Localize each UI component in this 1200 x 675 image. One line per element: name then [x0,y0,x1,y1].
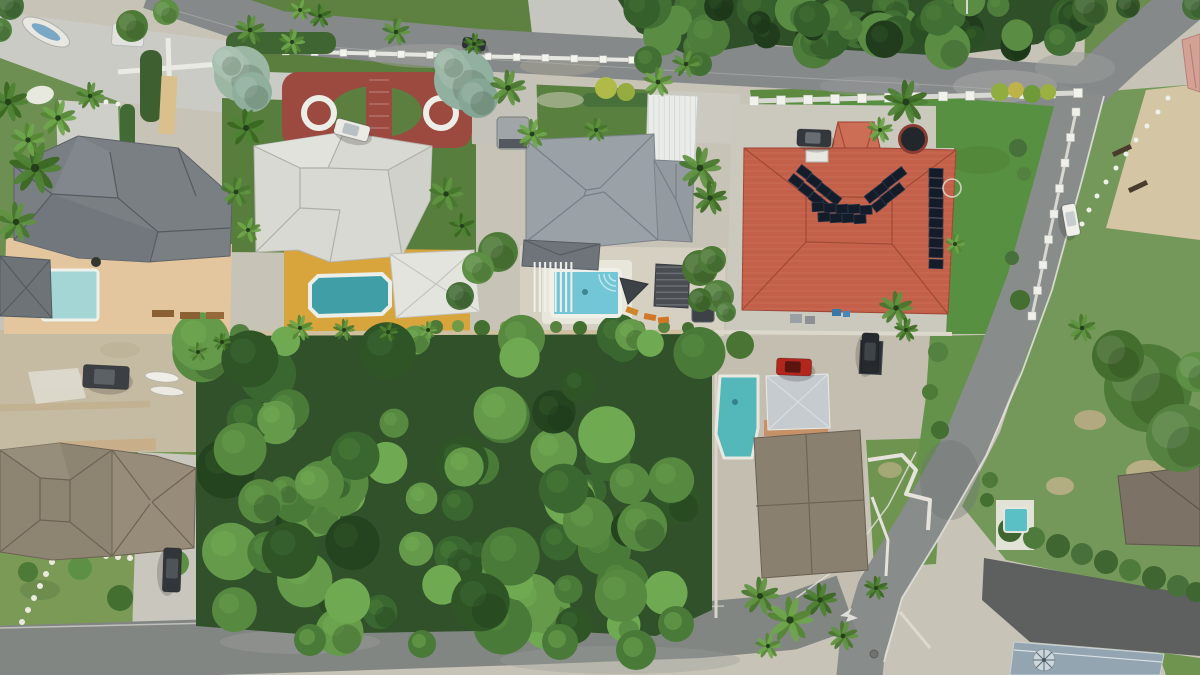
tree-shade [5,1,22,18]
solar-panel [929,208,943,217]
white-post-statue [1104,180,1109,185]
forest-canopy-light [641,333,653,345]
forest-canopy-light [566,373,581,388]
stepping-stone [127,555,133,561]
wall-forest-white [714,332,952,334]
forest-canopy-shadow [810,38,827,55]
bush-6 [573,321,587,335]
wall-post [1034,287,1042,295]
solar-panel [929,228,943,237]
wall-post [1072,108,1080,116]
palm-crown [394,30,398,34]
forest-canopy-light [270,530,295,555]
white-post-statue [104,100,109,105]
forest-overhang-light [299,629,315,645]
white-post-statue [1156,110,1161,115]
tree-shade [1083,2,1105,24]
wall-post [1039,261,1047,269]
forest-canopy-light [230,338,256,364]
tree-1 [232,72,272,112]
roof-ne-corner-brown-roof [1118,466,1200,546]
bush-15 [982,472,998,488]
bush-37 [1119,559,1141,581]
roof-center-wing [654,160,694,242]
white-post-statue [1166,96,1171,101]
solar-panel [824,203,836,213]
ground-blotch-2 [1046,477,1074,495]
tarp [28,368,86,404]
palm-crown [530,132,535,137]
tree-22 [153,0,179,25]
forest-overhang-light [1049,29,1065,45]
truck-sandlot-cabin [94,369,115,385]
palm-crown [684,62,688,66]
forest-canopy-light [338,438,360,460]
white-post-statue [1134,138,1139,143]
palm-crown [88,94,92,98]
forest-canopy-light [616,469,634,487]
solar-panel [929,178,943,187]
pool-mansion [310,274,390,316]
bush-12 [1017,167,1031,181]
wall-post [831,95,840,104]
solar-panel [929,188,943,197]
forest-canopy-light [447,494,461,508]
forest-canopy-shadow [375,607,396,628]
palm-crown [220,340,224,344]
forest-overhang-light [623,637,643,657]
solar-panel [848,204,860,214]
roof-topleft-pavilion [0,256,52,318]
ground-blotch-9 [100,342,140,358]
bench-patio-3 [206,312,224,319]
white-post-statue [1087,208,1092,213]
bush-30 [595,77,617,99]
forest-canopy-light [558,579,571,592]
forest-canopy-light [693,20,712,39]
pool-center-house [552,270,620,316]
forest-canopy-shadow [715,2,733,20]
roof-bottomleft-a [0,443,112,560]
palm-crown [505,85,511,91]
pool-equip-1 [832,309,841,316]
palm-crown [953,242,957,246]
solar-panel [929,168,943,177]
palm-crown [246,228,250,232]
roof-bottomleft-b [112,450,196,556]
roof-center-wing-roof [654,160,694,242]
forest-canopy-light [458,558,471,571]
tree-7 [462,252,494,284]
tree-shade [161,8,177,24]
palm-crown [707,195,712,200]
wall-post [571,55,578,62]
grill [91,257,101,267]
forest-canopy-light [799,6,815,22]
pool-se-small [1004,508,1028,532]
wall-post [542,54,549,61]
bush-16 [980,493,994,507]
garden-path-tan [158,76,177,135]
forest-canopy-light [219,593,239,613]
wall-post [1028,312,1036,320]
stepping-stone [37,583,43,589]
forest-overhang-light [548,630,566,648]
forest-canopy-light [871,25,888,42]
wall-post [939,92,948,101]
car-dark-bottomleft-cabin [166,558,179,578]
palm-crown [31,164,39,172]
tree-19 [688,288,712,312]
forest-canopy-light [482,394,506,418]
wall-post [777,96,786,105]
tree-2 [212,46,244,78]
solar-panel [836,204,848,214]
forest-canopy-light [537,435,558,456]
bush-23 [931,421,949,439]
roof-center-house [526,134,658,246]
bush-13 [1005,251,1019,265]
suv-dark-cabin [864,342,876,360]
forest-canopy-light [650,577,670,597]
palm-crown [13,219,19,225]
bush-36 [1094,550,1118,574]
forest-canopy-light [926,5,942,21]
forest-canopy-shadow [547,405,573,431]
bush-35 [1071,543,1093,565]
forest-canopy-light [505,343,523,361]
tree-13 [1092,330,1144,382]
roof-ne-corner-brown [1118,466,1200,546]
wall-post [427,52,434,59]
tree-shade [490,245,514,269]
bush-21 [928,342,948,362]
tree-shade [244,85,268,109]
wall-post [398,51,405,58]
forest-canopy-shadow [472,593,507,628]
palm-crown [594,128,598,132]
palm-crown [904,328,908,332]
palm-crown [196,350,200,354]
bush-2 [474,320,490,336]
tree-20 [716,302,736,322]
solar-panel [929,238,943,247]
palm-crown [460,224,464,228]
forest-canopy-light [546,528,563,545]
tree-shade [1123,2,1137,16]
forest-canopy-light [331,584,351,604]
white-post-statue [1145,124,1150,129]
spiral-staircase [1033,649,1055,671]
forest-canopy-shadow [756,19,770,33]
palm-crown [298,8,302,12]
palm-crown [817,597,822,602]
palm-crown [25,137,30,142]
forest-canopy-shadow [254,495,281,522]
tree-8 [446,282,474,310]
ground-blotch-7 [878,462,902,478]
bush-17 [991,83,1009,101]
forest-canopy-light [655,463,676,484]
forest-canopy-light [404,536,419,551]
bush-14 [1010,290,1030,310]
ac-unit-2 [805,316,815,324]
car-dark-orangehouse-cabin [805,132,821,144]
tree-shade [455,291,472,308]
forest-canopy-light [490,535,516,561]
bush-24 [68,556,92,580]
palm-crown [443,191,448,196]
wall-post [966,91,975,100]
bush-22 [922,384,938,400]
bush-20 [1040,84,1056,100]
tree-shade [1108,347,1139,378]
lounger-2 [658,316,670,323]
bush-39 [1167,575,1189,597]
white-post-statue [1124,152,1129,157]
wall-post [1045,236,1053,244]
tree-shade [126,21,145,40]
road-patch-3 [1035,52,1115,84]
solar-panel [929,218,943,227]
forest-canopy-light [428,570,446,588]
solar-panel [929,259,943,268]
white-post-statue [1080,222,1085,227]
ground-blotch-3 [1074,410,1106,430]
ground-blotch-10 [536,92,584,108]
solar-panel [830,213,842,223]
stepping-stone [25,607,31,613]
tree-shade [707,255,724,272]
forest-canopy-light [681,334,704,357]
bush-26 [107,585,133,611]
tree-5 [434,48,466,80]
solar-panel [818,212,830,222]
bush-43 [726,331,754,359]
forest-canopy-light [450,453,468,471]
palm-crown [766,644,770,648]
forest-canopy-light [222,430,246,454]
solar-panel [929,248,943,257]
forest-canopy-light [384,413,397,426]
palm-crown [472,42,476,46]
wall-post [369,50,376,57]
car-red-cabin [785,361,801,373]
wall-post [513,54,520,61]
roof-center-house-roof [526,134,658,246]
palm-crown [318,14,322,18]
palm-crown [697,165,704,172]
palm-crown [874,586,878,590]
bench-patio-2 [180,312,200,319]
white-post-statue [1114,166,1119,171]
manhole [870,650,878,658]
solar-panel [860,205,872,215]
screenshot-root [0,0,1200,675]
white-post-statue [116,102,121,107]
wall-post [1061,159,1069,167]
palm-crown [298,326,302,330]
roof-bottomright-house [754,430,868,578]
solar-panel [929,198,943,207]
forest-canopy-light [211,531,237,557]
bush-31 [617,83,635,101]
palm-crown [757,593,763,599]
bush-5 [550,321,562,333]
forest-canopy-light [587,414,613,440]
pool-mansion-water [310,274,390,316]
bush-19 [1023,85,1041,103]
palm-crown [243,125,249,131]
forest-canopy-light [546,470,568,492]
forest-canopy-light [1006,24,1020,38]
bush-38 [1142,566,1166,590]
solar-panel [854,214,866,224]
wall-post [600,56,607,63]
tree-21 [116,10,148,42]
wall-post [1050,210,1058,218]
forest-vacant-lot [172,312,726,670]
stepping-stone [31,595,37,601]
wall-post [340,49,347,56]
palm-crown [248,28,253,33]
bush-11 [1009,139,1027,157]
palm-crown [386,330,390,334]
palm-crown [902,98,909,105]
pool-detail [582,289,588,295]
bush-1 [452,320,464,332]
wall-post [858,94,867,103]
hedge-3 [582,93,652,107]
roof-mansion [254,132,432,262]
white-post-statue [1095,194,1100,199]
bush-25 [18,562,38,582]
solar-panel [812,202,824,212]
forest-canopy-light [233,405,253,425]
tree-shade [470,91,494,115]
tree-shade [695,296,709,310]
palm-crown [426,328,430,332]
pool-detail [732,399,738,405]
solar-panel [842,213,854,223]
bench-patio-1 [152,310,174,317]
forest-canopy-light [300,470,315,485]
stepping-stone [19,619,25,625]
palm-crown [786,616,793,623]
pool-se-small-water [1004,508,1028,532]
pool-bottomright-water [716,376,758,458]
spiral-center [1042,658,1046,662]
palm-crown [234,190,239,195]
wall-post [1056,185,1064,193]
palm-crown [893,305,898,310]
hedge-0 [140,50,162,122]
palm-crown [342,328,346,332]
tree-shade [722,309,734,321]
tree-18 [698,246,726,274]
forest-canopy-shadow [941,40,968,67]
palm-crown [656,80,661,85]
wall-post [804,95,813,104]
forest-overhang-light [664,612,682,630]
palm-crown [290,40,294,44]
palm-crown [5,99,11,105]
aerial-photo-neighborhood [0,0,1200,675]
ground-blotch-0 [950,146,1010,174]
forest-canopy-light [263,406,280,423]
trampoline [900,126,927,153]
forest-canopy-light [410,487,424,501]
wall-post [1067,134,1075,142]
wall-post [1074,89,1083,98]
pool-equip-2 [843,311,850,317]
forest-overhang-light [638,50,652,64]
palm-crown [841,634,846,639]
wall-post [750,97,759,106]
bush-34 [1046,534,1070,558]
palm-crown [55,115,61,121]
forest-overhang-light [412,634,426,648]
forest-canopy-light [180,320,206,346]
wall-retaining-sand [0,404,150,408]
ac-unit-1 [790,314,802,323]
tree-shade [472,263,491,282]
stepping-stone [43,571,49,577]
awning-bottomright [766,374,830,430]
bush-18 [1008,82,1024,98]
palm-crown [1080,326,1084,330]
forest-canopy-light [333,523,357,547]
forest-canopy-light [603,576,627,600]
forest-canopy-light [275,330,288,343]
tree-shade [444,59,463,78]
forest-canopy-shadow [635,519,665,549]
palm-crown [878,128,882,132]
tree-shade [222,57,241,76]
forest-canopy-shadow [332,625,361,654]
scene-layers [0,0,1200,675]
pool-bottomright [716,376,758,458]
